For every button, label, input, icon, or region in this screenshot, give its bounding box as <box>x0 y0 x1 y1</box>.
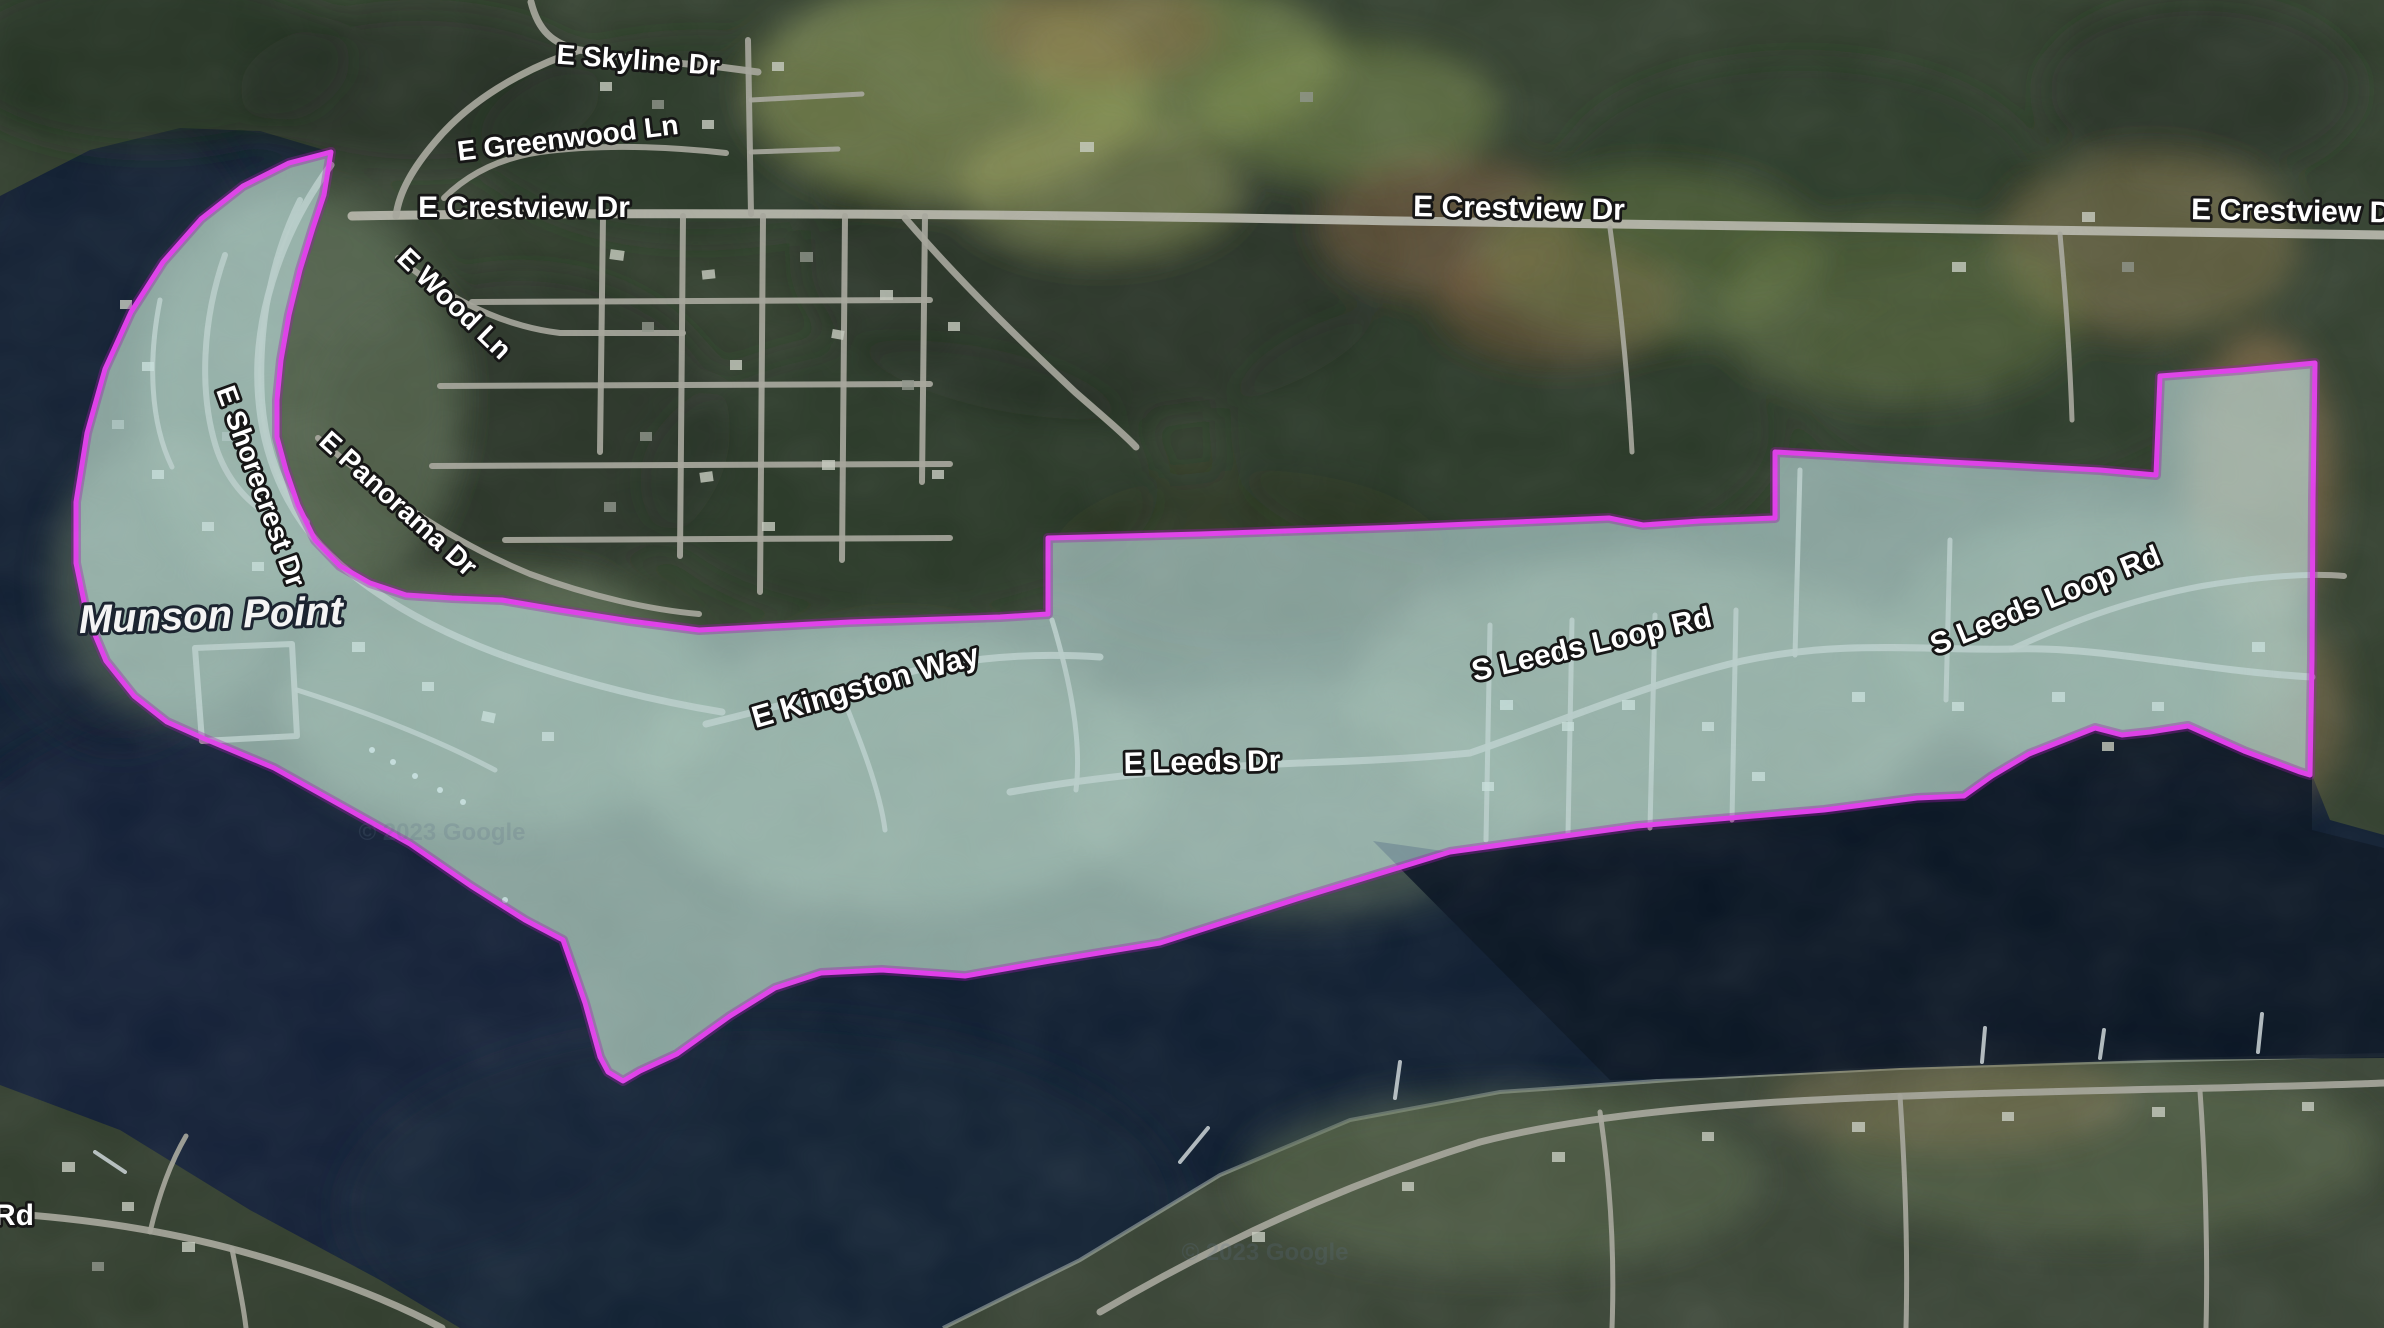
google-watermark: © 2023 Google <box>1181 1239 1348 1266</box>
road-label-e-crestview-dr-east: E Crestview Dr <box>2191 193 2384 230</box>
google-watermark: © 2023 Google <box>358 819 525 846</box>
place-label-munson-point: Munson Point <box>78 589 345 642</box>
road-label-e-crestview-dr-west: E Crestview Dr <box>418 191 630 224</box>
satellite-map-svg: © 2023 Google © 2023 Google E Skyline Dr… <box>0 0 2384 1328</box>
road-label-e-leeds-dr: E Leeds Dr <box>1123 745 1281 781</box>
road-label-rd-partial: Rd <box>0 1199 34 1232</box>
noise-texture <box>0 0 2384 1328</box>
map-canvas[interactable]: © 2023 Google © 2023 Google E Skyline Dr… <box>0 0 2384 1328</box>
road-label-e-crestview-dr-mid: E Crestview Dr <box>1413 190 1626 227</box>
